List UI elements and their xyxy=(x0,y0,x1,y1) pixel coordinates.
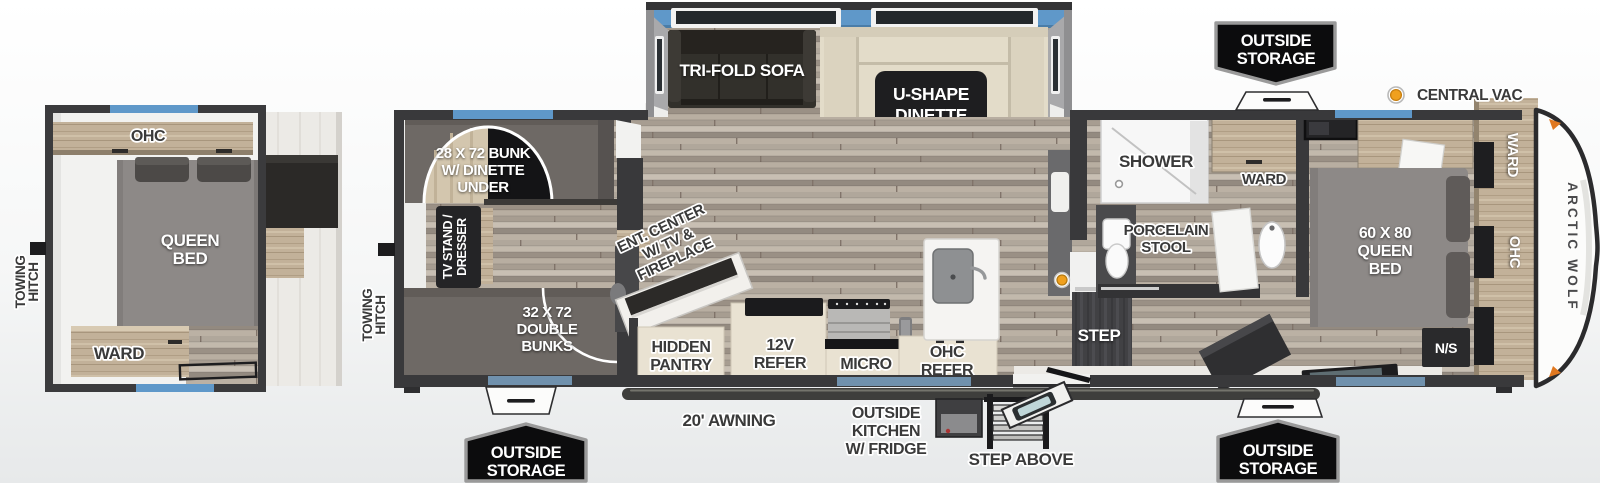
svg-text:QUEEN: QUEEN xyxy=(1358,243,1413,260)
svg-text:HITCH: HITCH xyxy=(26,262,41,301)
svg-text:HIDDEN: HIDDEN xyxy=(652,339,711,356)
svg-text:HITCH: HITCH xyxy=(373,295,388,334)
svg-text:OHC: OHC xyxy=(131,128,166,145)
svg-text:OUTSIDE: OUTSIDE xyxy=(491,444,562,462)
svg-text:BED: BED xyxy=(173,249,208,268)
svg-text:TV STAND /: TV STAND / xyxy=(441,214,455,279)
svg-text:DRESSER: DRESSER xyxy=(455,218,469,276)
svg-text:BUNKS: BUNKS xyxy=(521,338,573,355)
svg-text:OHC: OHC xyxy=(1506,236,1523,269)
svg-text:REFER: REFER xyxy=(754,355,807,372)
svg-text:OHC: OHC xyxy=(930,344,965,361)
svg-text:60 X 80: 60 X 80 xyxy=(1359,225,1412,242)
svg-text:STORAGE: STORAGE xyxy=(1239,460,1318,478)
svg-text:28 X 72 BUNK: 28 X 72 BUNK xyxy=(436,145,531,162)
svg-text:STEP: STEP xyxy=(1078,326,1121,345)
svg-text:CENTRAL VAC: CENTRAL VAC xyxy=(1417,87,1522,104)
svg-text:PORCELAIN: PORCELAIN xyxy=(1124,222,1209,239)
svg-text:OUTSIDE: OUTSIDE xyxy=(1243,442,1314,460)
svg-text:UNDER: UNDER xyxy=(457,179,509,196)
svg-text:STORAGE: STORAGE xyxy=(1237,50,1316,68)
svg-text:W/ DINETTE: W/ DINETTE xyxy=(442,162,525,179)
svg-text:W/ FRIDGE: W/ FRIDGE xyxy=(846,441,928,458)
svg-text:MICRO: MICRO xyxy=(840,356,891,373)
svg-text:WARD: WARD xyxy=(1242,171,1287,188)
svg-text:STORAGE: STORAGE xyxy=(487,462,566,480)
svg-text:WARD: WARD xyxy=(94,344,144,363)
svg-text:12V: 12V xyxy=(766,337,794,354)
svg-text:KITCHEN: KITCHEN xyxy=(852,423,920,440)
svg-text:OUTSIDE: OUTSIDE xyxy=(1241,32,1312,50)
svg-text:BED: BED xyxy=(1369,261,1402,278)
svg-text:TRI-FOLD SOFA: TRI-FOLD SOFA xyxy=(679,61,804,80)
svg-text:32 X 72: 32 X 72 xyxy=(523,304,572,321)
svg-text:PANTRY: PANTRY xyxy=(650,357,712,374)
svg-text:QUEEN: QUEEN xyxy=(161,231,220,250)
svg-text:WARD: WARD xyxy=(1504,133,1521,178)
svg-text:STOOL: STOOL xyxy=(1141,239,1191,256)
svg-text:STEP ABOVE: STEP ABOVE xyxy=(969,450,1074,469)
svg-text:U-SHAPE: U-SHAPE xyxy=(893,84,969,104)
svg-text:OUTSIDE: OUTSIDE xyxy=(852,405,921,422)
svg-text:20' AWNING: 20' AWNING xyxy=(683,411,776,430)
svg-text:SHOWER: SHOWER xyxy=(1119,152,1193,171)
svg-text:DOUBLE: DOUBLE xyxy=(517,321,578,338)
svg-text:N/S: N/S xyxy=(1435,340,1457,356)
svg-text:ARCTIC WOLF: ARCTIC WOLF xyxy=(1565,182,1580,312)
